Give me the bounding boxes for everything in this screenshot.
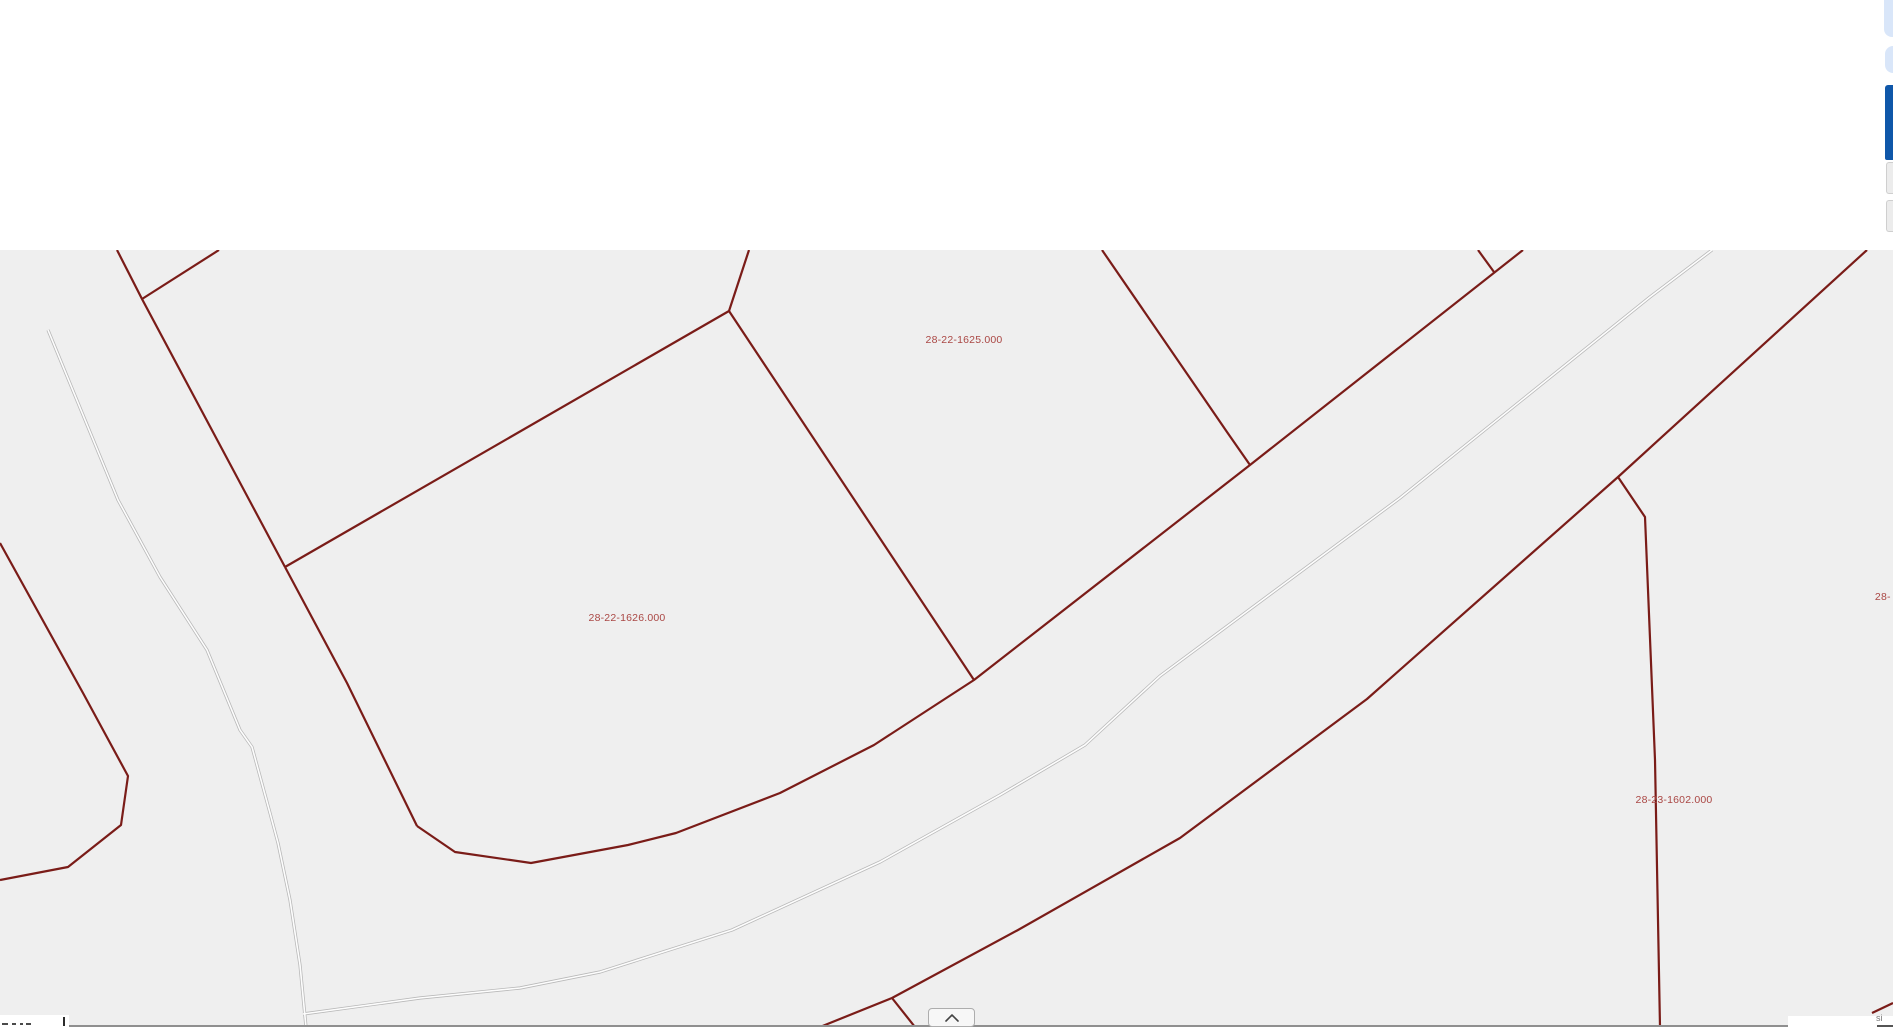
edge-control-light-blue-pill[interactable]	[1885, 46, 1893, 73]
map-svg	[0, 250, 1893, 1027]
scale-bar	[0, 1015, 69, 1028]
scale-bar-mark	[26, 1023, 31, 1025]
scale-bar-mark	[12, 1023, 16, 1025]
edge-control-light-blue-top[interactable]	[1884, 0, 1893, 37]
parcel-label: 28-22-1626.000	[589, 612, 666, 624]
edge-control-gray-button-2[interactable]	[1886, 200, 1893, 232]
map-viewport[interactable]: 28-22-1625.00028-22-1626.00028-23-1602.0…	[0, 250, 1893, 1027]
edge-control-dark-blue-panel[interactable]	[1885, 85, 1893, 160]
parcel-label: 28-23-1602.000	[1636, 794, 1713, 806]
edge-control-gray-button-1[interactable]	[1886, 162, 1893, 194]
blank-header	[0, 0, 1893, 250]
attribution-underline	[1877, 1025, 1893, 1027]
parcel-label: 28-22-1624.000	[510, 250, 587, 253]
scale-bar-mark	[2, 1023, 8, 1025]
parcel-label: 28-22-1625.000	[926, 334, 1003, 346]
parcel-label: 28-	[1875, 591, 1891, 603]
scale-bar-tick	[63, 1017, 65, 1026]
attribution-fragment: si	[1876, 1013, 1893, 1024]
chevron-up-icon	[940, 1011, 964, 1025]
expand-panel-button[interactable]	[928, 1008, 975, 1027]
scale-bar-mark	[20, 1023, 23, 1025]
